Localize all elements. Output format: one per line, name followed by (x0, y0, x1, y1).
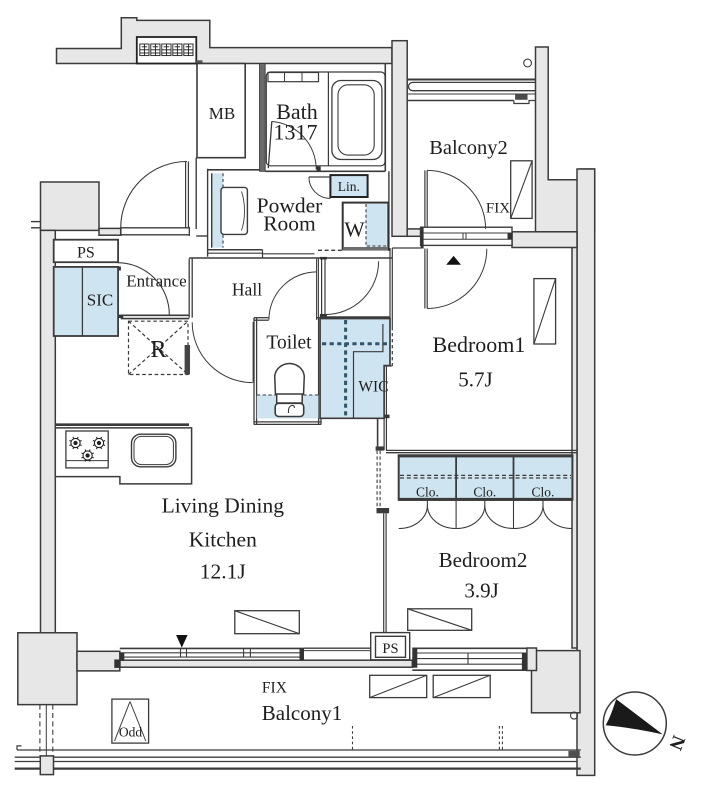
svg-text:Bedroom2: Bedroom2 (439, 548, 528, 572)
svg-text:FIX: FIX (262, 680, 287, 697)
svg-text:Living Dining: Living Dining (162, 494, 285, 518)
svg-text:Clo.: Clo. (473, 485, 496, 500)
svg-text:W: W (344, 218, 365, 242)
svg-text:PS: PS (77, 245, 95, 262)
svg-text:3.9J: 3.9J (464, 579, 498, 603)
svg-text:Bedroom1: Bedroom1 (433, 332, 526, 357)
svg-text:PS: PS (382, 641, 398, 657)
svg-text:SIC: SIC (87, 291, 113, 310)
svg-text:Clo.: Clo. (532, 485, 555, 500)
svg-text:MB: MB (209, 104, 235, 123)
svg-text:Clo.: Clo. (416, 485, 439, 500)
svg-text:1317: 1317 (274, 120, 318, 145)
svg-text:Lin.: Lin. (338, 179, 360, 194)
svg-text:5.7J: 5.7J (458, 368, 492, 392)
svg-text:Kitchen: Kitchen (189, 528, 257, 552)
svg-text:Toilet: Toilet (266, 333, 312, 354)
svg-text:12.1J: 12.1J (200, 560, 246, 584)
svg-text:R: R (150, 337, 166, 363)
svg-text:Entrance: Entrance (126, 272, 186, 291)
svg-text:Balcony2: Balcony2 (429, 137, 508, 159)
svg-text:Hall: Hall (232, 280, 262, 300)
svg-text:Odd: Odd (119, 725, 142, 740)
svg-text:FIX: FIX (486, 201, 510, 217)
svg-text:Room: Room (263, 212, 316, 236)
svg-text:Balcony1: Balcony1 (262, 701, 342, 725)
